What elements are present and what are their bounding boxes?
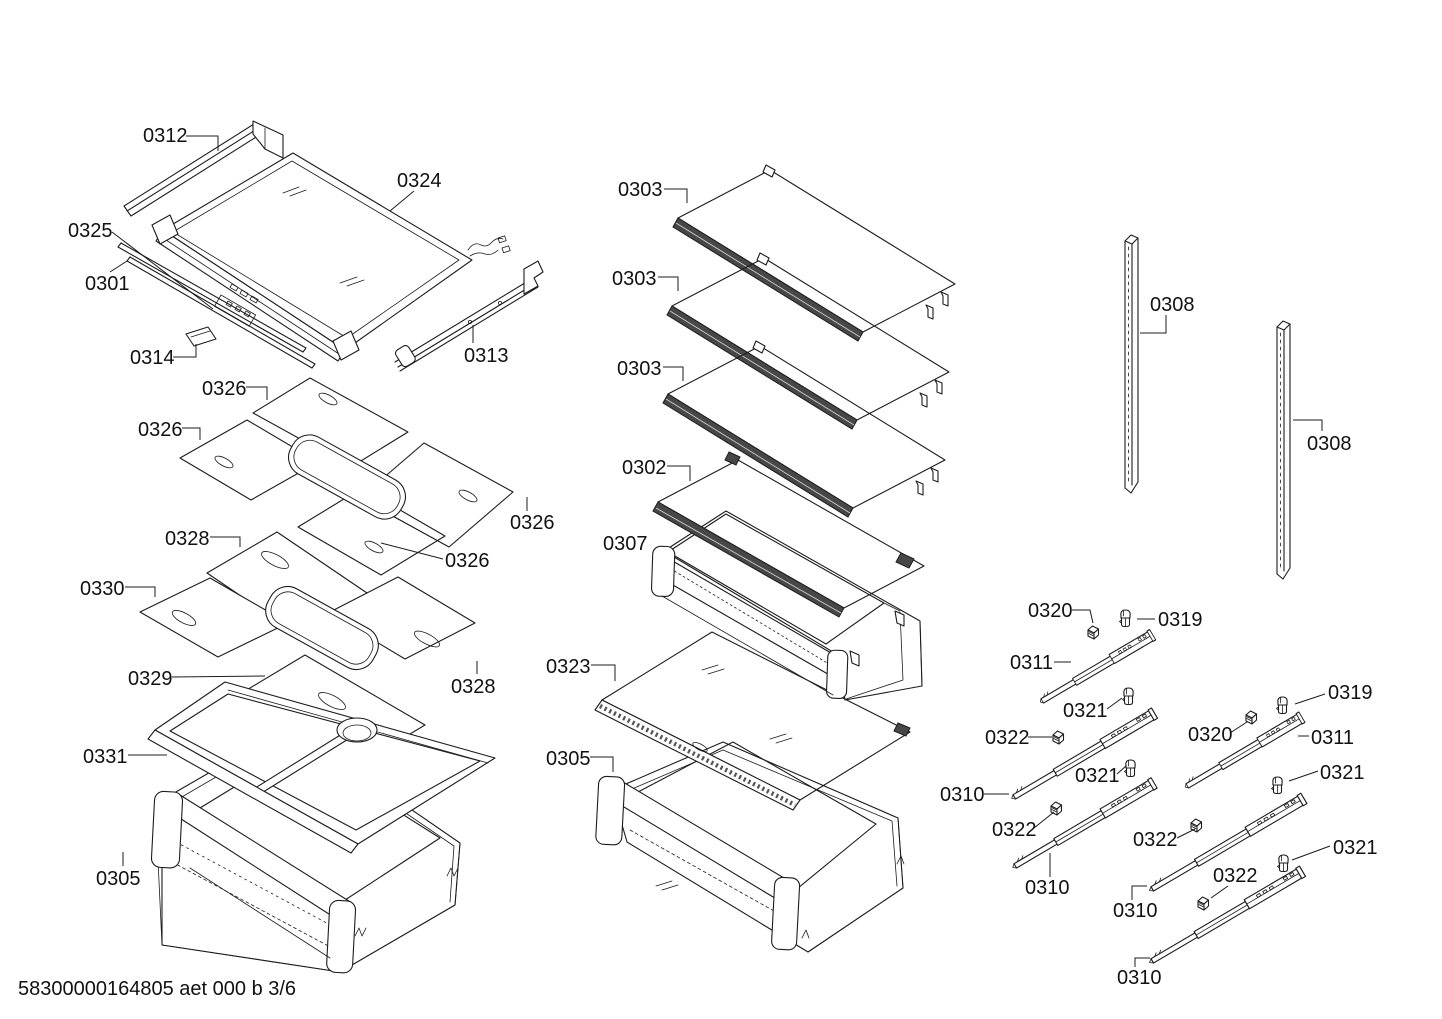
part-label-0321: 0321 [1063, 700, 1108, 722]
part-0321-clip [1278, 855, 1289, 872]
part-label-0303: 0303 [618, 179, 663, 201]
part-label-0312: 0312 [143, 125, 188, 147]
part-0320-clip [1088, 626, 1099, 639]
part-0308-post [1125, 235, 1138, 493]
part-label-0328: 0328 [165, 528, 210, 550]
part-label-0324: 0324 [397, 170, 442, 192]
parts-diagram-page: 0312 0324 0325 0301 0314 0313 0326 0326 … [0, 0, 1442, 1019]
part-label-0322: 0322 [1133, 829, 1178, 851]
part-label-0321: 0321 [1320, 762, 1365, 784]
part-label-0305: 0305 [96, 868, 141, 890]
part-0303-glass-shelf [667, 253, 949, 429]
part-label-0326: 0326 [445, 550, 490, 572]
part-label-0328: 0328 [451, 676, 496, 698]
part-0321-clip [1123, 688, 1134, 705]
part-label-0308: 0308 [1150, 294, 1195, 316]
glass-reflection-marks [702, 665, 792, 743]
part-0314-clip [186, 327, 216, 346]
part-0321-clip [1272, 777, 1283, 794]
part-0305-drawer-middle [595, 742, 904, 952]
part-label-0325: 0325 [68, 220, 113, 242]
part-0322-clip [1053, 731, 1064, 744]
part-0319-clip [1120, 610, 1131, 627]
part-label-0305: 0305 [546, 748, 591, 770]
shelf-light-wires [468, 236, 510, 256]
exploded-diagram: 0312 0324 0325 0301 0314 0313 0326 0326 … [0, 0, 1442, 1019]
part-label-0331: 0331 [83, 746, 128, 768]
part-label-0313: 0313 [464, 345, 509, 367]
part-label-0322: 0322 [1213, 865, 1258, 887]
part-label-0308: 0308 [1307, 433, 1352, 455]
part-label-0301: 0301 [85, 273, 130, 295]
part-label-0322: 0322 [992, 819, 1037, 841]
part-label-0321: 0321 [1333, 837, 1378, 859]
part-label-0322: 0322 [985, 727, 1030, 749]
part-label-0326: 0326 [138, 419, 183, 441]
part-label-0314: 0314 [130, 347, 175, 369]
part-label-0310: 0310 [940, 784, 985, 806]
part-label-0310: 0310 [1113, 900, 1158, 922]
part-0320-clip [1246, 711, 1257, 724]
part-label-0329: 0329 [128, 668, 173, 690]
part-label-0311: 0311 [1311, 727, 1354, 749]
part-label-0330: 0330 [80, 578, 125, 600]
part-0326-plate-group [180, 378, 513, 575]
part-0311-rail [1037, 630, 1156, 707]
plate-center-connector [282, 428, 413, 526]
part-label-0307: 0307 [603, 533, 648, 555]
part-0303-glass-shelf [663, 341, 945, 517]
part-label-0320: 0320 [1188, 724, 1233, 746]
part-label-0310: 0310 [1025, 877, 1070, 899]
part-0321-clip [1125, 760, 1136, 777]
part-label-0321: 0321 [1075, 765, 1120, 787]
part-label-0326: 0326 [510, 512, 555, 534]
part-label-0326: 0326 [202, 378, 247, 400]
part-0319-clip [1277, 697, 1288, 714]
part-label-0323: 0323 [546, 656, 591, 678]
part-label-0311: 0311 [1010, 652, 1053, 674]
reflection-marks [656, 881, 678, 890]
part-label-0303: 0303 [612, 268, 657, 290]
part-label-0319: 0319 [1158, 609, 1203, 631]
glass-reflection-marks [283, 187, 364, 286]
part-0307-drawer [651, 511, 922, 700]
part-label-0310: 0310 [1117, 967, 1162, 989]
document-code: 58300000164805 aet 000 b 3/6 [18, 978, 296, 1001]
part-0308-post [1277, 321, 1290, 579]
part-label-0320: 0320 [1028, 600, 1073, 622]
part-label-0302: 0302 [622, 457, 667, 479]
part-label-0303: 0303 [617, 358, 662, 380]
part-label-0319: 0319 [1328, 682, 1373, 704]
part-0303-glass-shelf [673, 165, 955, 341]
part-0322-clip [1198, 897, 1209, 910]
